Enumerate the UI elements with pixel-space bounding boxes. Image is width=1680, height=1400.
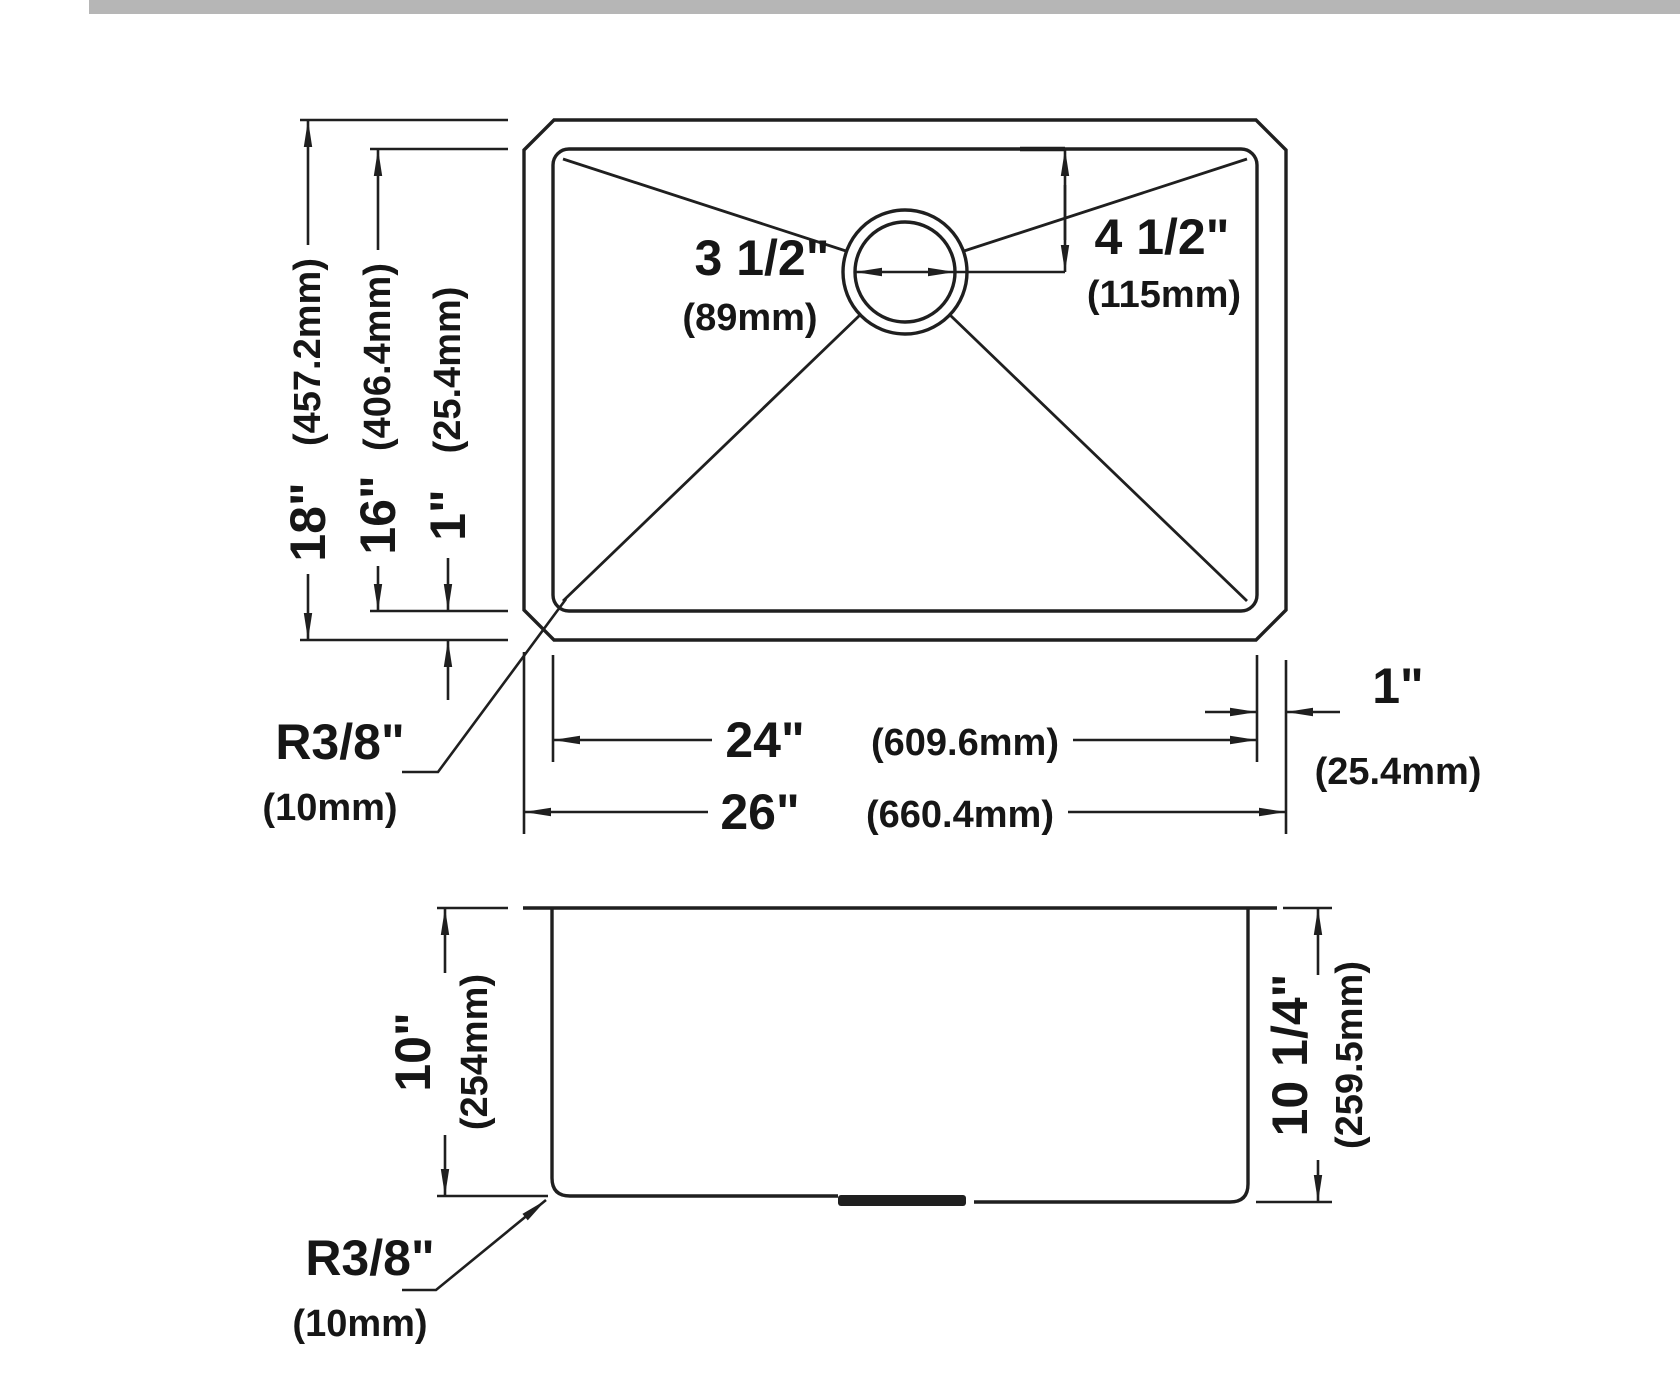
top-gray-bar (89, 0, 1680, 14)
page-background (0, 0, 1680, 1400)
label-1in-right-mm: (25.4mm) (1315, 751, 1482, 793)
label-drain-diameter: 3 1/2" (695, 230, 830, 286)
label-10qtr: 10 1/4" (1262, 974, 1318, 1137)
label-10qtr-mm: (259.5mm) (1329, 961, 1371, 1149)
sink-dimension-drawing: 18" (457.2mm) 16" (406.4mm) 1" (25.4mm) … (0, 0, 1680, 1400)
label-corner-radius-side-mm: (10mm) (292, 1303, 427, 1345)
label-24in: 24" (725, 712, 804, 768)
label-26in-mm: (660.4mm) (866, 794, 1054, 836)
label-18in-mm: (457.2mm) (287, 258, 329, 446)
label-16in-mm: (406.4mm) (357, 263, 399, 451)
label-16in: 16" (350, 475, 406, 554)
label-10in: 10" (385, 1012, 441, 1091)
label-1in-left: 1" (420, 489, 476, 541)
label-corner-radius-top: R3/8" (275, 714, 404, 770)
label-corner-radius-side: R3/8" (305, 1230, 434, 1286)
drawing-canvas: 18" (457.2mm) 16" (406.4mm) 1" (25.4mm) … (0, 0, 1680, 1400)
label-drain-offset: 4 1/2" (1095, 209, 1230, 265)
label-18in: 18" (280, 482, 336, 561)
drain-boss (838, 1195, 966, 1206)
label-drain-diameter-mm: (89mm) (682, 297, 817, 339)
label-drain-offset-mm: (115mm) (1087, 274, 1241, 316)
label-1in-left-mm: (25.4mm) (427, 287, 469, 454)
label-10in-mm: (254mm) (454, 974, 496, 1130)
label-1in-right: 1" (1372, 658, 1424, 714)
label-26in: 26" (720, 784, 799, 840)
label-corner-radius-top-mm: (10mm) (262, 787, 397, 829)
label-24in-mm: (609.6mm) (871, 722, 1059, 764)
